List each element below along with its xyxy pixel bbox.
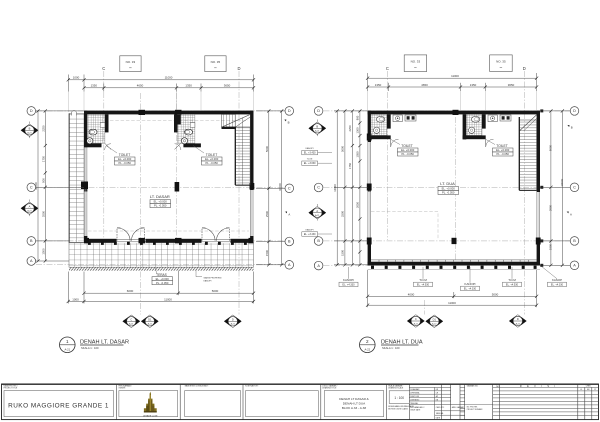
svg-text:2250: 2250 (41, 125, 45, 132)
svg-text:A: A (288, 212, 290, 216)
svg-text:3650: 3650 (508, 83, 515, 87)
svg-text:1 : 100: 1 : 100 (394, 396, 404, 400)
svg-text:ISSUE DATE: ISSUE DATE (410, 408, 421, 411)
svg-text:5000: 5000 (265, 145, 269, 152)
svg-text:A: A (29, 204, 31, 208)
svg-text:1350: 1350 (185, 84, 192, 88)
svg-text:CHED. P/C: CHED. P/C (436, 407, 445, 409)
svg-text:KANOPI: KANOPI (204, 280, 212, 283)
svg-text:EL. +4.330: EL. +4.330 (551, 283, 564, 286)
svg-text:D: D (517, 317, 519, 321)
svg-text:B: B (571, 126, 573, 130)
svg-text:GAMBAR NO.: GAMBAR NO. (467, 385, 479, 388)
svg-text:5000: 5000 (341, 146, 345, 152)
svg-text:4650: 4650 (421, 83, 428, 87)
svg-text:A: A (30, 259, 33, 263)
svg-text:5000: 5000 (212, 289, 219, 293)
svg-text:TANGGAL: TANGGAL (436, 412, 444, 415)
svg-text:A: A (573, 264, 576, 268)
svg-text:900: 900 (356, 115, 360, 120)
svg-text:DENAH LT. DUA: DENAH LT. DUA (381, 339, 423, 345)
svg-text:EL. +3.430: EL. +3.430 (304, 233, 316, 236)
svg-text:10000: 10000 (333, 184, 337, 192)
svg-text:1350: 1350 (470, 83, 477, 87)
svg-text:TOILET: TOILET (119, 153, 130, 157)
svg-text:NO. 33: NO. 33 (411, 59, 421, 63)
svg-text:T.D.M: T.D.M (508, 278, 516, 282)
svg-text:RUKO MAGGIORE GRANDE 1: RUKO MAGGIORE GRANDE 1 (8, 403, 109, 410)
svg-text:C: C (573, 186, 576, 190)
svg-text:2050: 2050 (356, 202, 360, 208)
svg-text:1300: 1300 (356, 127, 360, 133)
svg-text:B: B (30, 239, 33, 243)
svg-text:T.D.M: T.D.M (307, 159, 313, 161)
svg-text:B: B (573, 239, 576, 243)
svg-text:A-22: A-22 (364, 347, 370, 351)
svg-text:1350: 1350 (91, 84, 98, 88)
svg-text:2500: 2500 (549, 204, 553, 211)
svg-text:4650: 4650 (137, 84, 144, 88)
svg-text:LT. DASAR: LT. DASAR (150, 194, 170, 199)
svg-text:D: D (232, 317, 234, 321)
svg-text:A: A (570, 212, 572, 216)
svg-text:OWNER: OWNER (118, 388, 126, 390)
svg-text:C: C (386, 66, 389, 71)
svg-text:DENAH LT. DASAR: DENAH LT. DASAR (80, 339, 129, 345)
svg-text:1500: 1500 (265, 249, 269, 256)
svg-text:KANOPI: KANOPI (306, 228, 314, 231)
svg-text:EL. +4.530: EL. +4.530 (506, 283, 519, 286)
svg-text:KANOPI: KANOPI (306, 147, 314, 150)
svg-text:SKALA 1 : 100: SKALA 1 : 100 (81, 346, 99, 350)
svg-text:BLOK A.33 - A.38: BLOK A.33 - A.38 (342, 406, 367, 410)
svg-text:2500: 2500 (341, 211, 345, 217)
svg-text:DEVARE CLIVE: DEVARE CLIVE (143, 414, 158, 417)
svg-text:2500: 2500 (265, 210, 269, 217)
svg-text:DIKETAHUI: DIKETAHUI (410, 398, 419, 401)
svg-text:1: 1 (66, 339, 69, 344)
svg-text:D1: D1 (148, 317, 152, 321)
svg-text:C: C (415, 317, 417, 321)
svg-text:2250: 2250 (348, 125, 352, 131)
svg-text:DENAH LT DUA: DENAH LT DUA (343, 401, 366, 405)
svg-text:TOILET: TOILET (401, 144, 412, 148)
svg-text:D: D (573, 109, 576, 113)
svg-text:3650: 3650 (224, 84, 231, 88)
svg-text:D: D (237, 66, 240, 71)
svg-text:C: C (30, 186, 33, 190)
svg-text:MOHON DICEK ULANG: MOHON DICEK ULANG (388, 408, 408, 411)
svg-text:1000: 1000 (73, 76, 80, 80)
svg-text:DRAWING SCALE: DRAWING SCALE (388, 387, 404, 390)
svg-text:11000: 11000 (165, 76, 173, 80)
svg-text:1500: 1500 (41, 248, 45, 255)
svg-text:DIGAMBAR: DIGAMBAR (410, 388, 420, 391)
svg-text:NO. 35: NO. 35 (211, 60, 221, 64)
svg-text:B: B (288, 240, 291, 244)
svg-text:B: B (29, 126, 31, 130)
svg-text:SKALA 1 : 100: SKALA 1 : 100 (382, 346, 400, 350)
svg-text:6000: 6000 (127, 289, 134, 293)
svg-text:A-21: A-21 (64, 347, 70, 351)
svg-text:1000: 1000 (72, 297, 79, 301)
svg-text:C: C (130, 317, 132, 321)
svg-text:10000: 10000 (278, 183, 282, 191)
svg-text:5000: 5000 (492, 292, 499, 296)
svg-text:900: 900 (41, 178, 45, 183)
svg-text:5000: 5000 (549, 144, 553, 151)
svg-text:DIPERIKSA: DIPERIKSA (410, 392, 420, 395)
svg-text:PROJECT NUMBER: PROJECT NUMBER (467, 409, 483, 411)
svg-text:LT. DUA: LT. DUA (440, 181, 455, 186)
svg-text:GARIS PROPERSI: GARIS PROPERSI (204, 277, 222, 280)
svg-text:1750: 1750 (348, 163, 352, 169)
svg-text:NO. 33: NO. 33 (126, 60, 136, 64)
svg-text:EL. +4.330: EL. +4.330 (342, 283, 355, 286)
svg-text:C: C (102, 66, 105, 71)
svg-text:TOILET: TOILET (206, 153, 217, 157)
svg-text:1500: 1500 (341, 250, 345, 256)
svg-text:11000: 11000 (448, 301, 456, 305)
svg-text:T.D.M: T.D.M (419, 278, 427, 282)
svg-text:1750: 1750 (41, 155, 45, 162)
svg-text:TOILET: TOILET (496, 144, 507, 148)
svg-text:C: C (288, 187, 291, 191)
svg-text:3500: 3500 (41, 210, 45, 217)
svg-text:KONTRAKTOR :: KONTRAKTOR : (245, 385, 259, 388)
svg-text:D: D (523, 66, 526, 71)
svg-text:A: A (316, 209, 318, 213)
svg-text:B: B (288, 120, 290, 124)
svg-text:EL. +4.530: EL. +4.530 (417, 283, 430, 286)
svg-text:11000: 11000 (451, 74, 459, 78)
svg-text:1500: 1500 (549, 243, 553, 250)
svg-text:EL. +4.330: EL. +4.330 (464, 287, 477, 290)
svg-text:TANGGAL: TANGGAL (410, 402, 418, 405)
svg-text:C: C (317, 186, 320, 190)
svg-text:EL. +3.630: EL. +3.630 (304, 162, 316, 165)
svg-text:DENAH LT DASAR &: DENAH LT DASAR & (339, 397, 369, 401)
svg-text:TERAS: TERAS (156, 273, 167, 277)
svg-text:DRAWING TITLE: DRAWING TITLE (322, 387, 337, 390)
svg-text:10000: 10000 (560, 178, 564, 186)
svg-text:D: D (317, 109, 320, 113)
svg-text:B: B (316, 124, 318, 128)
svg-text:1050: 1050 (356, 151, 360, 157)
svg-text:MARKETING CONSULTANT :: MARKETING CONSULTANT : (185, 385, 210, 388)
svg-text:A: A (288, 263, 291, 267)
svg-text:NO. 35: NO. 35 (496, 59, 506, 63)
svg-text:11000: 11000 (164, 297, 172, 301)
svg-text:1350: 1350 (375, 83, 382, 87)
svg-text:PROJECT TITLE: PROJECT TITLE (4, 388, 19, 390)
svg-text:D: D (30, 109, 33, 113)
svg-text:DISETUJUI: DISETUJUI (410, 396, 419, 398)
svg-text:EL. +3.430: EL. +3.430 (304, 152, 316, 155)
svg-text:2: 2 (366, 339, 369, 344)
svg-text:D1: D1 (433, 317, 437, 321)
svg-text:D: D (288, 109, 291, 113)
svg-text:4000: 4000 (408, 292, 415, 296)
